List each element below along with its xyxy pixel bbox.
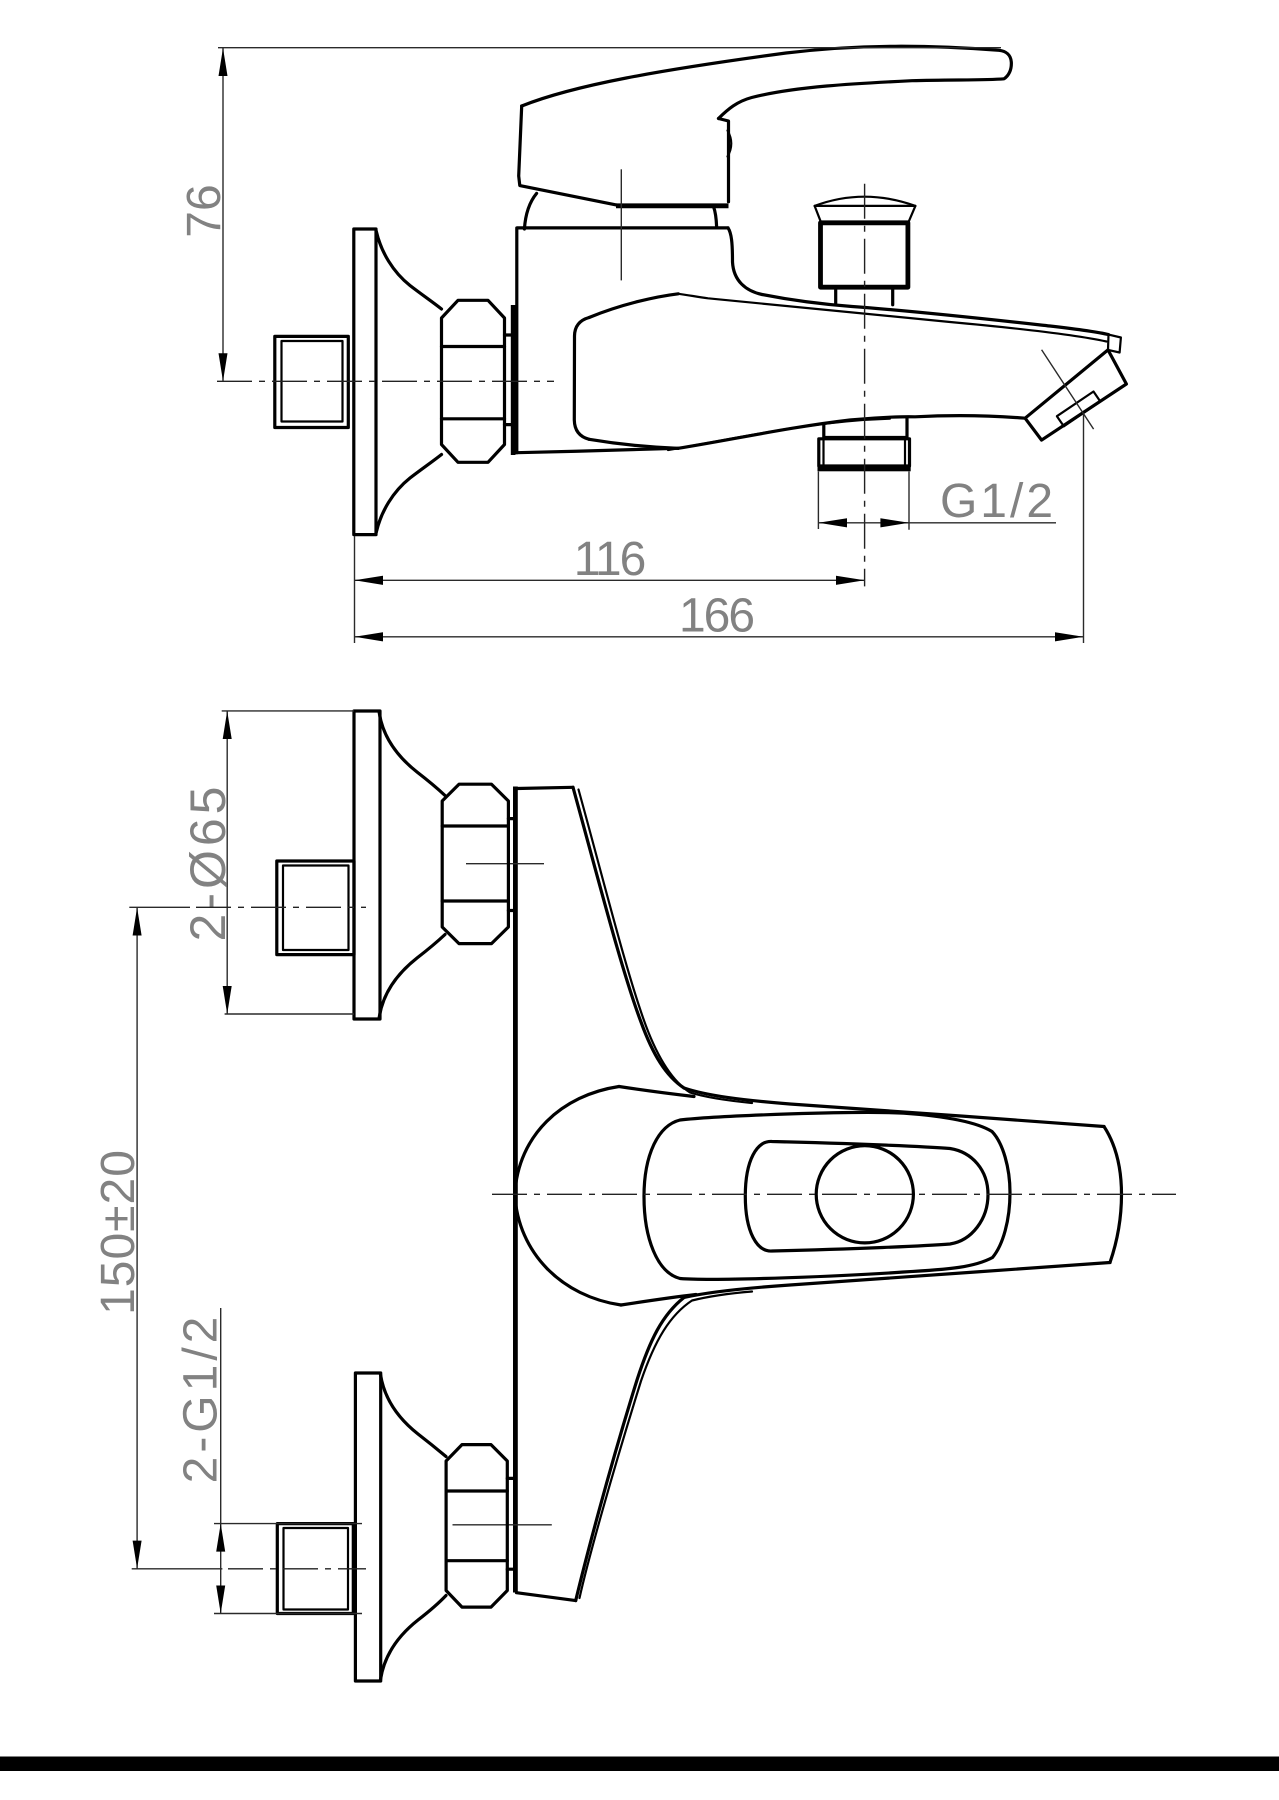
svg-text:116: 116 bbox=[574, 533, 645, 586]
svg-text:76: 76 bbox=[178, 184, 231, 237]
svg-text:150±20: 150±20 bbox=[92, 1149, 145, 1315]
svg-text:2-Ø65: 2-Ø65 bbox=[180, 783, 236, 942]
svg-text:2-G1/2: 2-G1/2 bbox=[175, 1313, 228, 1484]
svg-text:G1/2: G1/2 bbox=[940, 475, 1056, 528]
svg-text:166: 166 bbox=[679, 590, 753, 643]
